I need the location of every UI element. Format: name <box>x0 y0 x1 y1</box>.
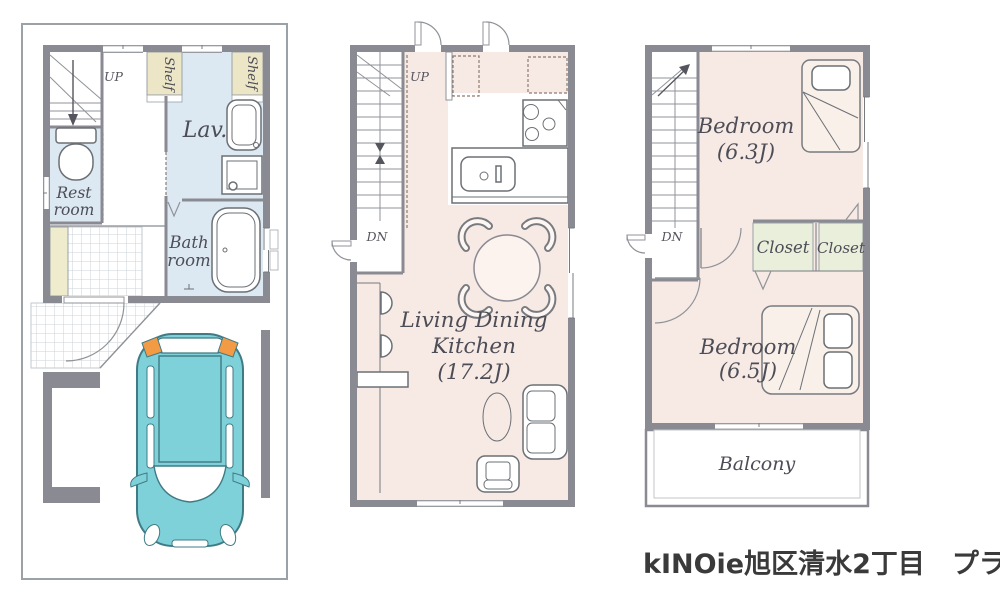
ldk-label-1: Living Dining <box>399 308 547 333</box>
car-top-view <box>131 334 250 548</box>
window-restroom <box>43 177 50 209</box>
door-2f-top-b <box>483 22 509 52</box>
kitchen-counter <box>452 148 568 203</box>
window-3f-right <box>863 97 870 188</box>
car-rear-window <box>156 338 224 353</box>
second-floor-plan: UP DN Living Dining Kitchen (17.2J) <box>332 22 575 507</box>
door-2f-left <box>332 240 357 262</box>
garage-wall-right <box>261 330 270 498</box>
shelf-b-label: Shelf <box>244 56 259 92</box>
door-2f-top-a <box>415 22 441 52</box>
shelf-a-label: Shelf <box>161 57 176 93</box>
window-1f-top-b <box>182 45 222 53</box>
laundry-sink-icon <box>227 100 261 150</box>
closet-b-label: Closet <box>817 239 866 257</box>
bathroom-label-2: room <box>167 251 210 270</box>
third-floor-plan: Bedroom (6.3J) DN Closet Closet Bedroom … <box>627 45 870 506</box>
car-roof <box>159 356 221 462</box>
stove-icon <box>523 100 567 146</box>
pillow <box>812 66 850 90</box>
window-2f-bottom <box>417 500 503 507</box>
window-3f-top <box>712 45 790 52</box>
balcony-label: Balcony <box>718 453 796 475</box>
shoe-cabinet <box>50 227 68 296</box>
sofa-icon <box>523 385 567 459</box>
floor-plan-canvas: UP Shelf Shelf Lav. Rest room Bath room <box>0 0 1000 600</box>
plan-title: kINOie旭区清水2丁目 プラン <box>643 549 1000 580</box>
dn-label-2f: DN <box>366 229 389 244</box>
ldk-size-label: (17.2J) <box>437 360 510 385</box>
dn-label-3f: DN <box>661 229 684 244</box>
lavatory-label: Lav. <box>182 118 228 143</box>
closet-a-label: Closet <box>757 238 810 257</box>
pillow <box>824 352 852 388</box>
restroom-label-1: Rest <box>55 184 92 202</box>
bedroom2-size-label: (6.5J) <box>719 359 777 383</box>
bathtub-icon <box>212 208 260 292</box>
ldk-label-2: Kitchen <box>431 334 516 359</box>
washing-machine-icon <box>222 156 262 194</box>
car-grille <box>172 540 208 547</box>
bedroom1-size-label: (6.3J) <box>717 140 775 164</box>
toilet-icon <box>56 128 96 180</box>
up-label-1f: UP <box>104 69 124 84</box>
window-1f-top-a <box>103 45 143 53</box>
round-table <box>474 235 540 301</box>
restroom-label-2: room <box>54 201 95 219</box>
first-floor-plan: UP Shelf Shelf Lav. Rest room Bath room <box>22 24 287 579</box>
entry-tile-floor <box>68 227 142 296</box>
bedroom2-label: Bedroom <box>699 335 797 359</box>
armchair-icon <box>477 456 519 492</box>
window-2f-right <box>568 228 575 318</box>
up-label-2f: UP <box>410 69 430 84</box>
bathroom-label-1: Bath <box>168 233 208 252</box>
pillow <box>824 314 852 348</box>
bedroom1-label: Bedroom <box>697 114 795 138</box>
single-bed-icon <box>802 60 860 152</box>
door-3f-left <box>627 234 652 258</box>
